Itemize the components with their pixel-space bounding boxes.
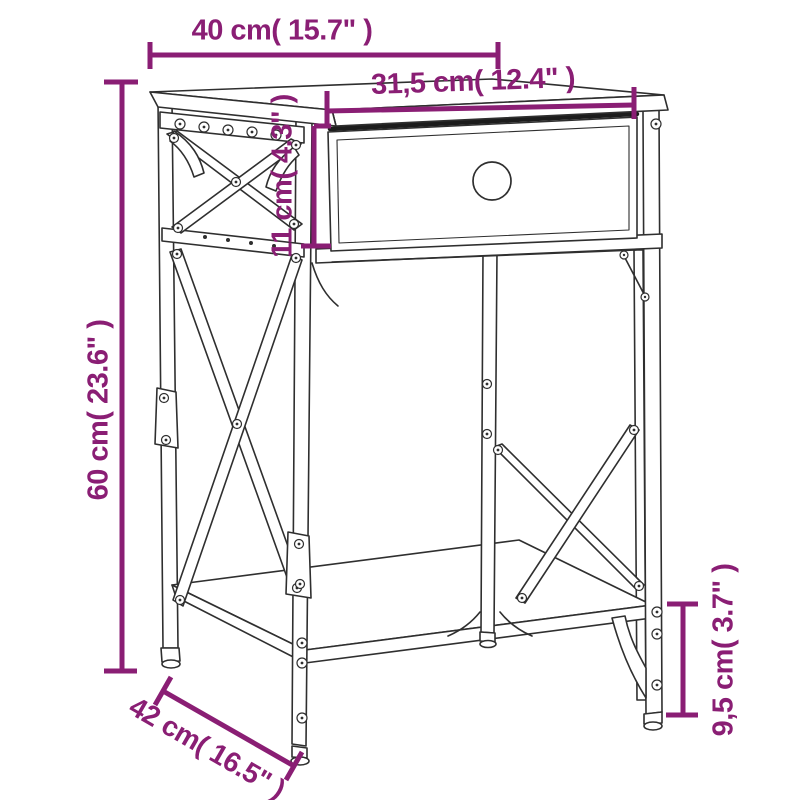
dimension-label-drawer-height: 11 cm( 4.3" ) xyxy=(267,94,300,258)
dimension-label-total-height: 60 cm( 23.6" ) xyxy=(83,320,116,501)
lower-shelf xyxy=(172,540,652,663)
left-back-leg xyxy=(158,100,180,668)
drawer-front xyxy=(328,117,637,251)
dimension-label-top-width: 40 cm( 15.7" ) xyxy=(192,15,373,48)
dimension-line-shelf-clearance xyxy=(666,604,698,716)
nightstand-line-drawing xyxy=(0,0,800,800)
product-dimension-diagram: 40 cm( 15.7" ) 31,5 cm( 12.4" ) 11 cm( 4… xyxy=(0,0,800,800)
dimension-label-shelf-clearance: 9,5 cm( 3.7" ) xyxy=(708,564,741,737)
